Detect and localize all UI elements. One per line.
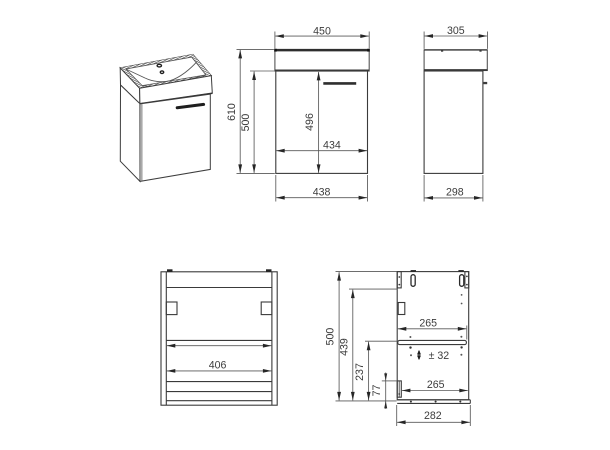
svg-text:237: 237 xyxy=(354,363,366,381)
svg-text:434: 434 xyxy=(323,139,341,151)
svg-text:439: 439 xyxy=(338,338,350,356)
svg-text:610: 610 xyxy=(226,103,238,121)
svg-text:265: 265 xyxy=(419,318,437,330)
svg-text:77: 77 xyxy=(371,385,383,397)
svg-text:305: 305 xyxy=(447,25,465,37)
svg-text:406: 406 xyxy=(209,359,227,371)
svg-text:265: 265 xyxy=(427,379,445,391)
svg-text:450: 450 xyxy=(313,25,331,37)
svg-text:438: 438 xyxy=(313,186,331,198)
svg-text:298: 298 xyxy=(446,187,464,199)
svg-text:± 32: ± 32 xyxy=(429,350,450,362)
svg-text:496: 496 xyxy=(304,113,316,131)
svg-text:500: 500 xyxy=(325,328,337,346)
svg-text:500: 500 xyxy=(240,114,252,132)
svg-text:282: 282 xyxy=(424,410,442,422)
